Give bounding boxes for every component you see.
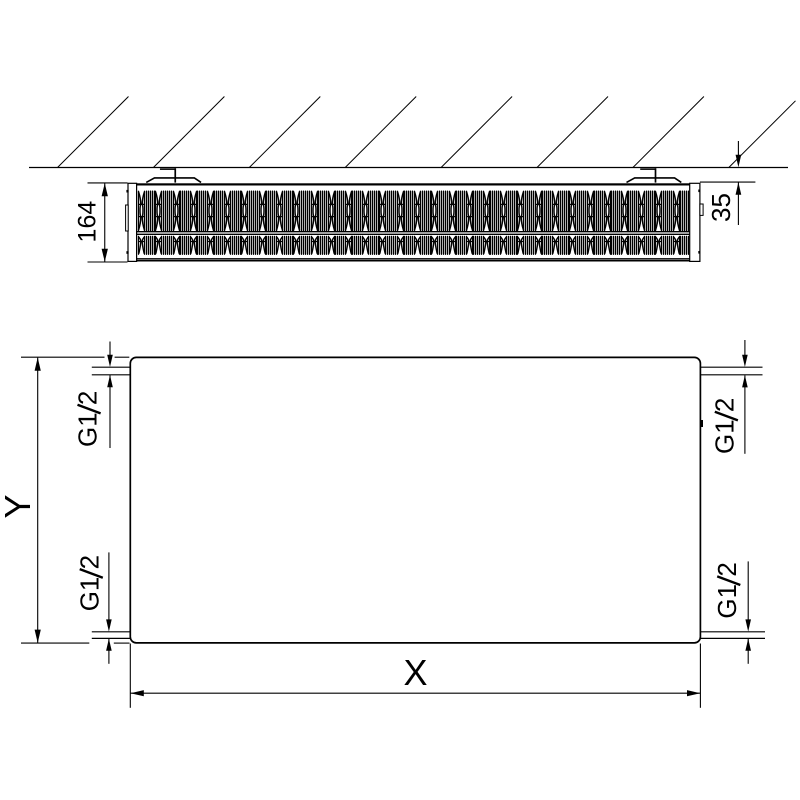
svg-text:2: 2 (75, 555, 105, 569)
svg-text:G1: G1 (75, 577, 105, 612)
svg-text:2: 2 (710, 398, 740, 412)
svg-text:G1: G1 (712, 584, 742, 619)
svg-text:X: X (403, 652, 427, 693)
svg-text:164: 164 (74, 201, 102, 243)
svg-text:2: 2 (712, 562, 742, 576)
svg-text:Y: Y (0, 494, 38, 518)
svg-text:G1: G1 (710, 419, 740, 454)
svg-text:35: 35 (706, 193, 736, 222)
svg-text:G1: G1 (72, 412, 102, 447)
svg-text:2: 2 (72, 391, 102, 405)
